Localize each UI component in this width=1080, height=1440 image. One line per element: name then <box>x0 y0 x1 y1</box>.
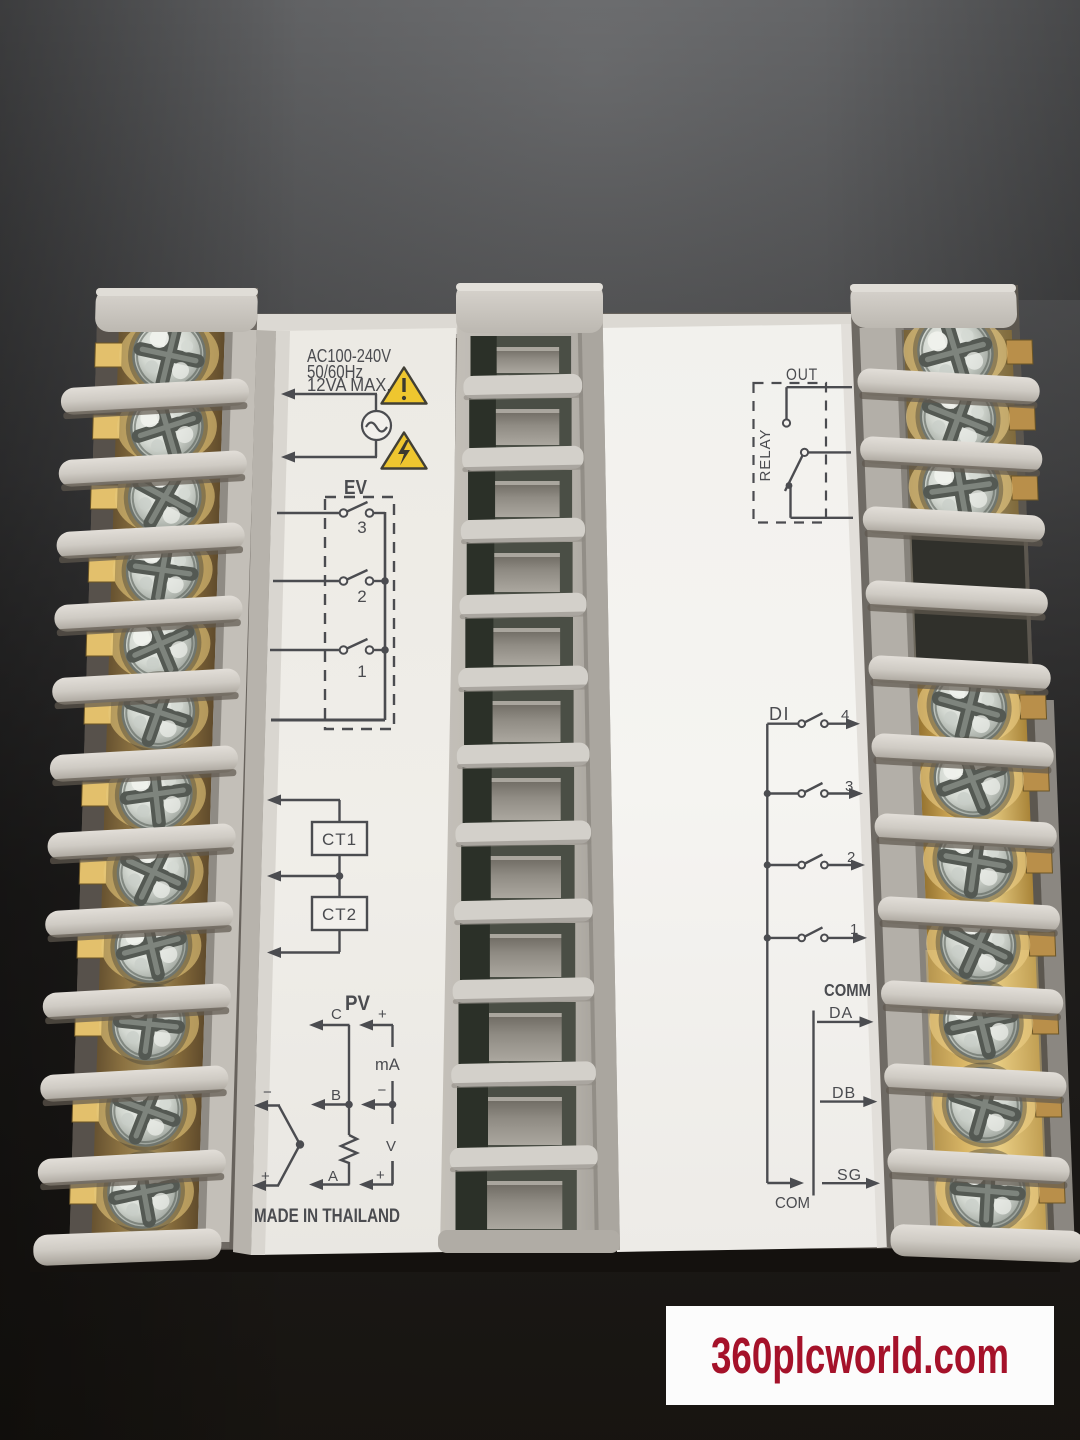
svg-text:EV: EV <box>344 477 368 499</box>
svg-text:2: 2 <box>847 849 855 866</box>
svg-text:CT1: CT1 <box>322 830 357 849</box>
svg-text:+: + <box>376 1167 385 1184</box>
svg-text:12VA MAX.: 12VA MAX. <box>307 375 391 395</box>
svg-text:COMM: COMM <box>824 980 871 1000</box>
svg-text:3: 3 <box>357 518 366 537</box>
svg-text:CT2: CT2 <box>322 905 357 924</box>
svg-text:+: + <box>378 1006 387 1023</box>
svg-text:COM: COM <box>775 1195 810 1212</box>
svg-text:SG: SG <box>837 1167 862 1184</box>
svg-text:C: C <box>331 1006 342 1023</box>
svg-text:2: 2 <box>357 587 366 606</box>
svg-text:DA: DA <box>829 1005 853 1022</box>
svg-text:4: 4 <box>841 707 849 724</box>
svg-text:1: 1 <box>850 921 858 938</box>
svg-text:A: A <box>328 1168 338 1185</box>
svg-text:MADE IN THAILAND: MADE IN THAILAND <box>254 1206 400 1227</box>
svg-text:RELAY: RELAY <box>757 428 774 481</box>
svg-text:360plcworld.com: 360plcworld.com <box>711 1327 1009 1384</box>
svg-text:1: 1 <box>357 662 366 681</box>
svg-text:DI: DI <box>769 704 790 724</box>
svg-text:3: 3 <box>845 778 853 795</box>
svg-text:PV: PV <box>345 992 370 1015</box>
svg-text:DB: DB <box>832 1085 856 1102</box>
svg-text:mA: mA <box>375 1056 400 1074</box>
svg-text:V: V <box>386 1138 396 1155</box>
svg-text:−: − <box>378 1082 387 1099</box>
svg-text:−: − <box>263 1084 272 1101</box>
svg-text:+: + <box>261 1168 270 1185</box>
svg-text:OUT: OUT <box>786 365 818 384</box>
svg-text:B: B <box>331 1087 341 1104</box>
